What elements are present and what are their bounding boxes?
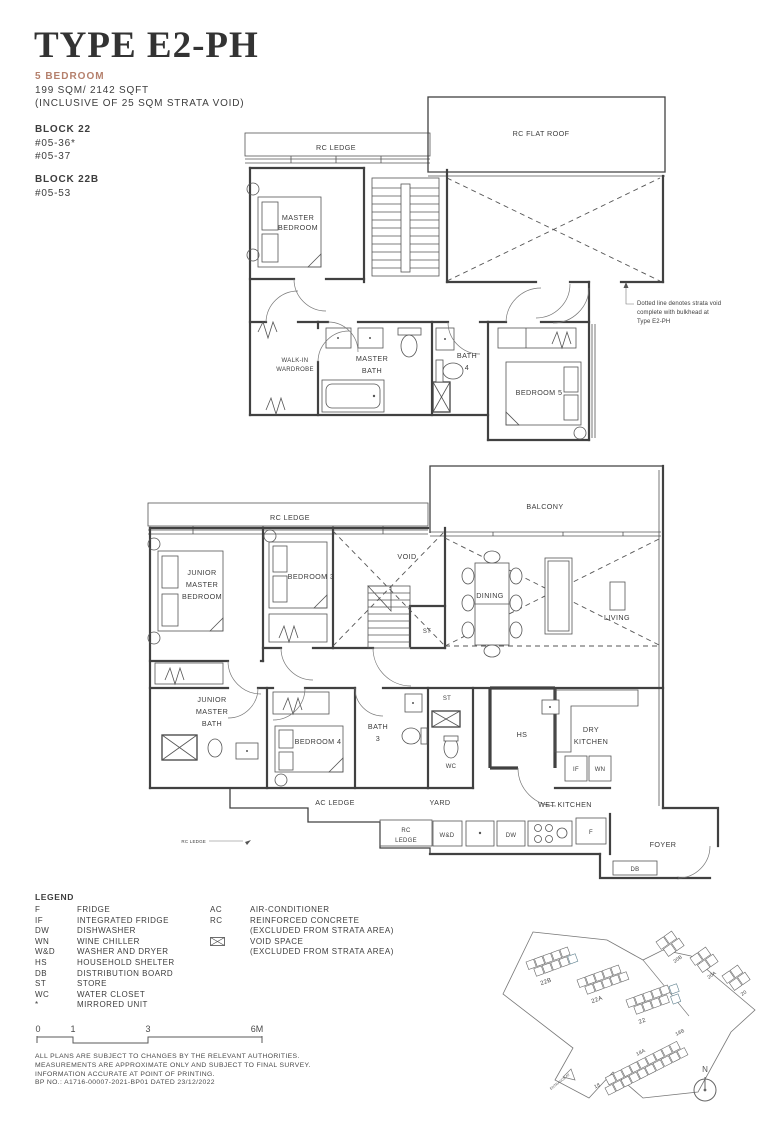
scale-tick-1: 1 (70, 1024, 75, 1034)
upper-plan-note-leader (624, 282, 635, 304)
label-bath3-2: 3 (376, 734, 380, 743)
lower-plan-callout (209, 840, 251, 845)
legend-abbr: DW (35, 926, 77, 937)
label-rc-ledge-upper: RC LEDGE (316, 143, 356, 152)
label-void: VOID (397, 552, 416, 561)
bedroom-type: 5 BEDROOM (35, 71, 105, 82)
label-dry-kitchen-1: DRY (583, 725, 599, 734)
label-if: IF (573, 767, 579, 773)
site-label-22b: 22B (540, 978, 553, 988)
legend-label: REINFORCED CONCRETE (250, 916, 360, 925)
upper-plan-doors (266, 279, 589, 362)
unit-area-note: (INCLUSIVE OF 25 SQM STRATA VOID) (35, 98, 244, 109)
label-bath3-1: BATH (368, 722, 388, 731)
label-bath4-1: BATH (457, 351, 477, 360)
legend-abbr: HS (35, 958, 77, 969)
strata-void-note-1: Dotted line denotes strata void (637, 301, 721, 307)
label-master-bath-2: BATH (362, 366, 382, 375)
site-block-18-row: 18 18A 18B (589, 1028, 695, 1099)
label-walk-in-2: WARDROBE (276, 367, 314, 373)
upper-floor-plan: RC LEDGE RC FLAT ROOF MASTER BEDROOM WAL… (236, 92, 766, 458)
disclaimer-line: BP NO.: A1716-00007-2021-BP01 DATED 23/1… (35, 1079, 311, 1088)
legend-right-column: ACAIR-CONDITIONER RCREINFORCED CONCRETE … (210, 905, 394, 958)
legend-abbr: AC (210, 905, 250, 916)
legend-label: (EXCLUDED FROM STRATA AREA) (250, 947, 394, 956)
site-label-18b: 18B (675, 1028, 687, 1038)
site-unit-highlight-22-a (669, 984, 679, 994)
label-jmb-2: MASTER (186, 580, 218, 589)
block-2-unit-1: #05-53 (35, 188, 71, 199)
scale-bar: 0 1 3 6M (35, 1024, 275, 1050)
label-st-top: ST (423, 629, 431, 635)
label-bedroom3: BEDROOM 3 (288, 572, 335, 581)
legend-abbr: W&D (35, 947, 77, 958)
disclaimer-line: ALL PLANS ARE SUBJECT TO CHANGES BY THE … (35, 1053, 311, 1062)
label-balcony: BALCONY (526, 502, 563, 511)
label-ac-ledge: AC LEDGE (315, 798, 355, 807)
label-master-bedroom-1: MASTER (282, 213, 314, 222)
site-unit-highlight-22b (568, 954, 578, 964)
label-st-mid: ST (443, 696, 451, 702)
label-yard: YARD (429, 798, 450, 807)
legend-label: VOID SPACE (250, 937, 303, 946)
site-block-22: 22 (626, 982, 686, 1027)
site-plan-map: 22B 22A 22 20B 20A 20 (493, 920, 763, 1122)
legend-abbr: WC (35, 990, 77, 1001)
label-rc-ledge-lower: RC LEDGE (270, 513, 310, 522)
legend-label: DISTRIBUTION BOARD (77, 969, 173, 978)
scale-tick-0: 0 (35, 1024, 40, 1034)
site-entrance-marker: ENTRANCE AT (549, 1069, 575, 1091)
legend-label: WINE CHILLER (77, 937, 140, 946)
block-1-name: BLOCK 22 (35, 124, 91, 135)
site-label-20b: 20B (672, 954, 684, 965)
north-compass-icon: N (694, 1065, 716, 1101)
label-walk-in-1: WALK-IN (282, 358, 309, 364)
scale-tick-6m: 6M (251, 1024, 264, 1034)
label-wet-kitchen: WET KITCHEN (538, 800, 592, 809)
legend-title: LEGEND (35, 892, 175, 902)
site-label-18a: 18A (635, 1048, 647, 1058)
lower-plan-walls (148, 466, 718, 878)
legend-abbr: RC (210, 916, 250, 927)
legend-label: (EXCLUDED FROM STRATA AREA) (250, 926, 394, 935)
label-jmbath-3: BATH (202, 719, 222, 728)
legend-label: FRIDGE (77, 905, 110, 914)
label-rc-ledge-sm-2: LEDGE (395, 838, 417, 844)
legend-label: INTEGRATED FRIDGE (77, 916, 169, 925)
site-block-20: 20 (722, 964, 756, 1001)
block-2-name: BLOCK 22B (35, 174, 99, 185)
label-wn: WN (595, 767, 606, 773)
legend-label: MIRRORED UNIT (77, 1000, 148, 1009)
block-1-unit-2: #05-37 (35, 151, 71, 162)
site-label-20a: 20A (706, 970, 718, 981)
floorplan-page: TYPE E2-PH 5 BEDROOM 199 SQM/ 2142 SQFT … (0, 0, 768, 1124)
label-bedroom4: BEDROOM 4 (295, 737, 342, 746)
page-title: TYPE E2-PH (34, 24, 259, 67)
legend-abbr: ST (35, 979, 77, 990)
legend-abbr: DB (35, 969, 77, 980)
upper-plan-walls (245, 97, 665, 440)
label-wd: W&D (440, 833, 455, 839)
legend-abbr: IF (35, 916, 77, 927)
label-master-bedroom-2: BEDROOM (278, 223, 318, 232)
site-block-20b: 20B (656, 930, 690, 967)
legend-label: DISHWASHER (77, 926, 136, 935)
legend-abbr: F (35, 905, 77, 916)
disclaimer-line: INFORMATION ACCURATE AT POINT OF PRINTIN… (35, 1071, 311, 1080)
site-label-20: 20 (740, 989, 748, 997)
label-rc-ledge-sm-1: RC (401, 828, 411, 834)
label-foyer: FOYER (650, 840, 677, 849)
legend-label: WASHER AND DRYER (77, 947, 169, 956)
site-entrance-label: ENTRANCE AT (549, 1072, 571, 1091)
strata-void-note-2: complete with bulkhead at (637, 310, 709, 316)
upper-plan-labels: RC LEDGE RC FLAT ROOF MASTER BEDROOM WAL… (276, 129, 721, 397)
disclaimer-notes: ALL PLANS ARE SUBJECT TO CHANGES BY THE … (35, 1053, 311, 1088)
scale-tick-3: 3 (145, 1024, 150, 1034)
legend-label: AIR-CONDITIONER (250, 905, 330, 914)
label-living: LIVING (604, 613, 630, 622)
site-block-20a: 20A (690, 946, 724, 983)
legend: LEGEND FFRIDGE IFINTEGRATED FRIDGE DWDIS… (35, 892, 175, 1011)
label-dw: DW (506, 833, 517, 839)
label-jmbath-2: MASTER (196, 707, 228, 716)
unit-area: 199 SQM/ 2142 SQFT (35, 85, 149, 96)
legend-label: WATER CLOSET (77, 990, 145, 999)
block-1-unit-1: #05-36* (35, 138, 76, 149)
label-dry-kitchen-2: KITCHEN (574, 737, 608, 746)
site-label-22: 22 (638, 1018, 647, 1026)
label-db: DB (631, 867, 640, 873)
label-jmbath-1: JUNIOR (197, 695, 226, 704)
label-rc-ledge-callout: RC LEDGE (181, 839, 206, 844)
site-label-22a: 22A (591, 996, 604, 1006)
label-jmb-1: JUNIOR (187, 568, 216, 577)
label-wc: WC (446, 764, 457, 770)
legend-label: STORE (77, 979, 107, 988)
label-bath4-2: 4 (465, 363, 469, 372)
label-f: F (589, 830, 593, 836)
label-jmb-3: BEDROOM (182, 592, 222, 601)
label-dining: DINING (476, 591, 504, 600)
legend-abbr: * (35, 1000, 77, 1011)
disclaimer-line: MEASUREMENTS ARE APPROXIMATE ONLY AND SU… (35, 1062, 311, 1071)
strata-void-note-3: Type E2-PH (637, 319, 670, 325)
site-label-18: 18 (593, 1082, 601, 1090)
upper-plan-stairs (372, 178, 439, 276)
compass-n-label: N (702, 1065, 708, 1074)
legend-label: HOUSEHOLD SHELTER (77, 958, 175, 967)
label-rc-flat-roof: RC FLAT ROOF (513, 129, 570, 138)
void-space-icon (210, 937, 250, 948)
legend-abbr: WN (35, 937, 77, 948)
label-master-bath-1: MASTER (356, 354, 388, 363)
label-bedroom5: BEDROOM 5 (516, 388, 563, 397)
lower-floor-plan: RC LEDGE BALCONY JUNIOR MASTER BEDROOM B… (133, 456, 758, 888)
site-block-22a: 22A (577, 963, 633, 1007)
site-block-22b: 22B (526, 945, 582, 989)
label-hs: HS (517, 730, 528, 739)
lower-plan-stairs (368, 586, 410, 648)
